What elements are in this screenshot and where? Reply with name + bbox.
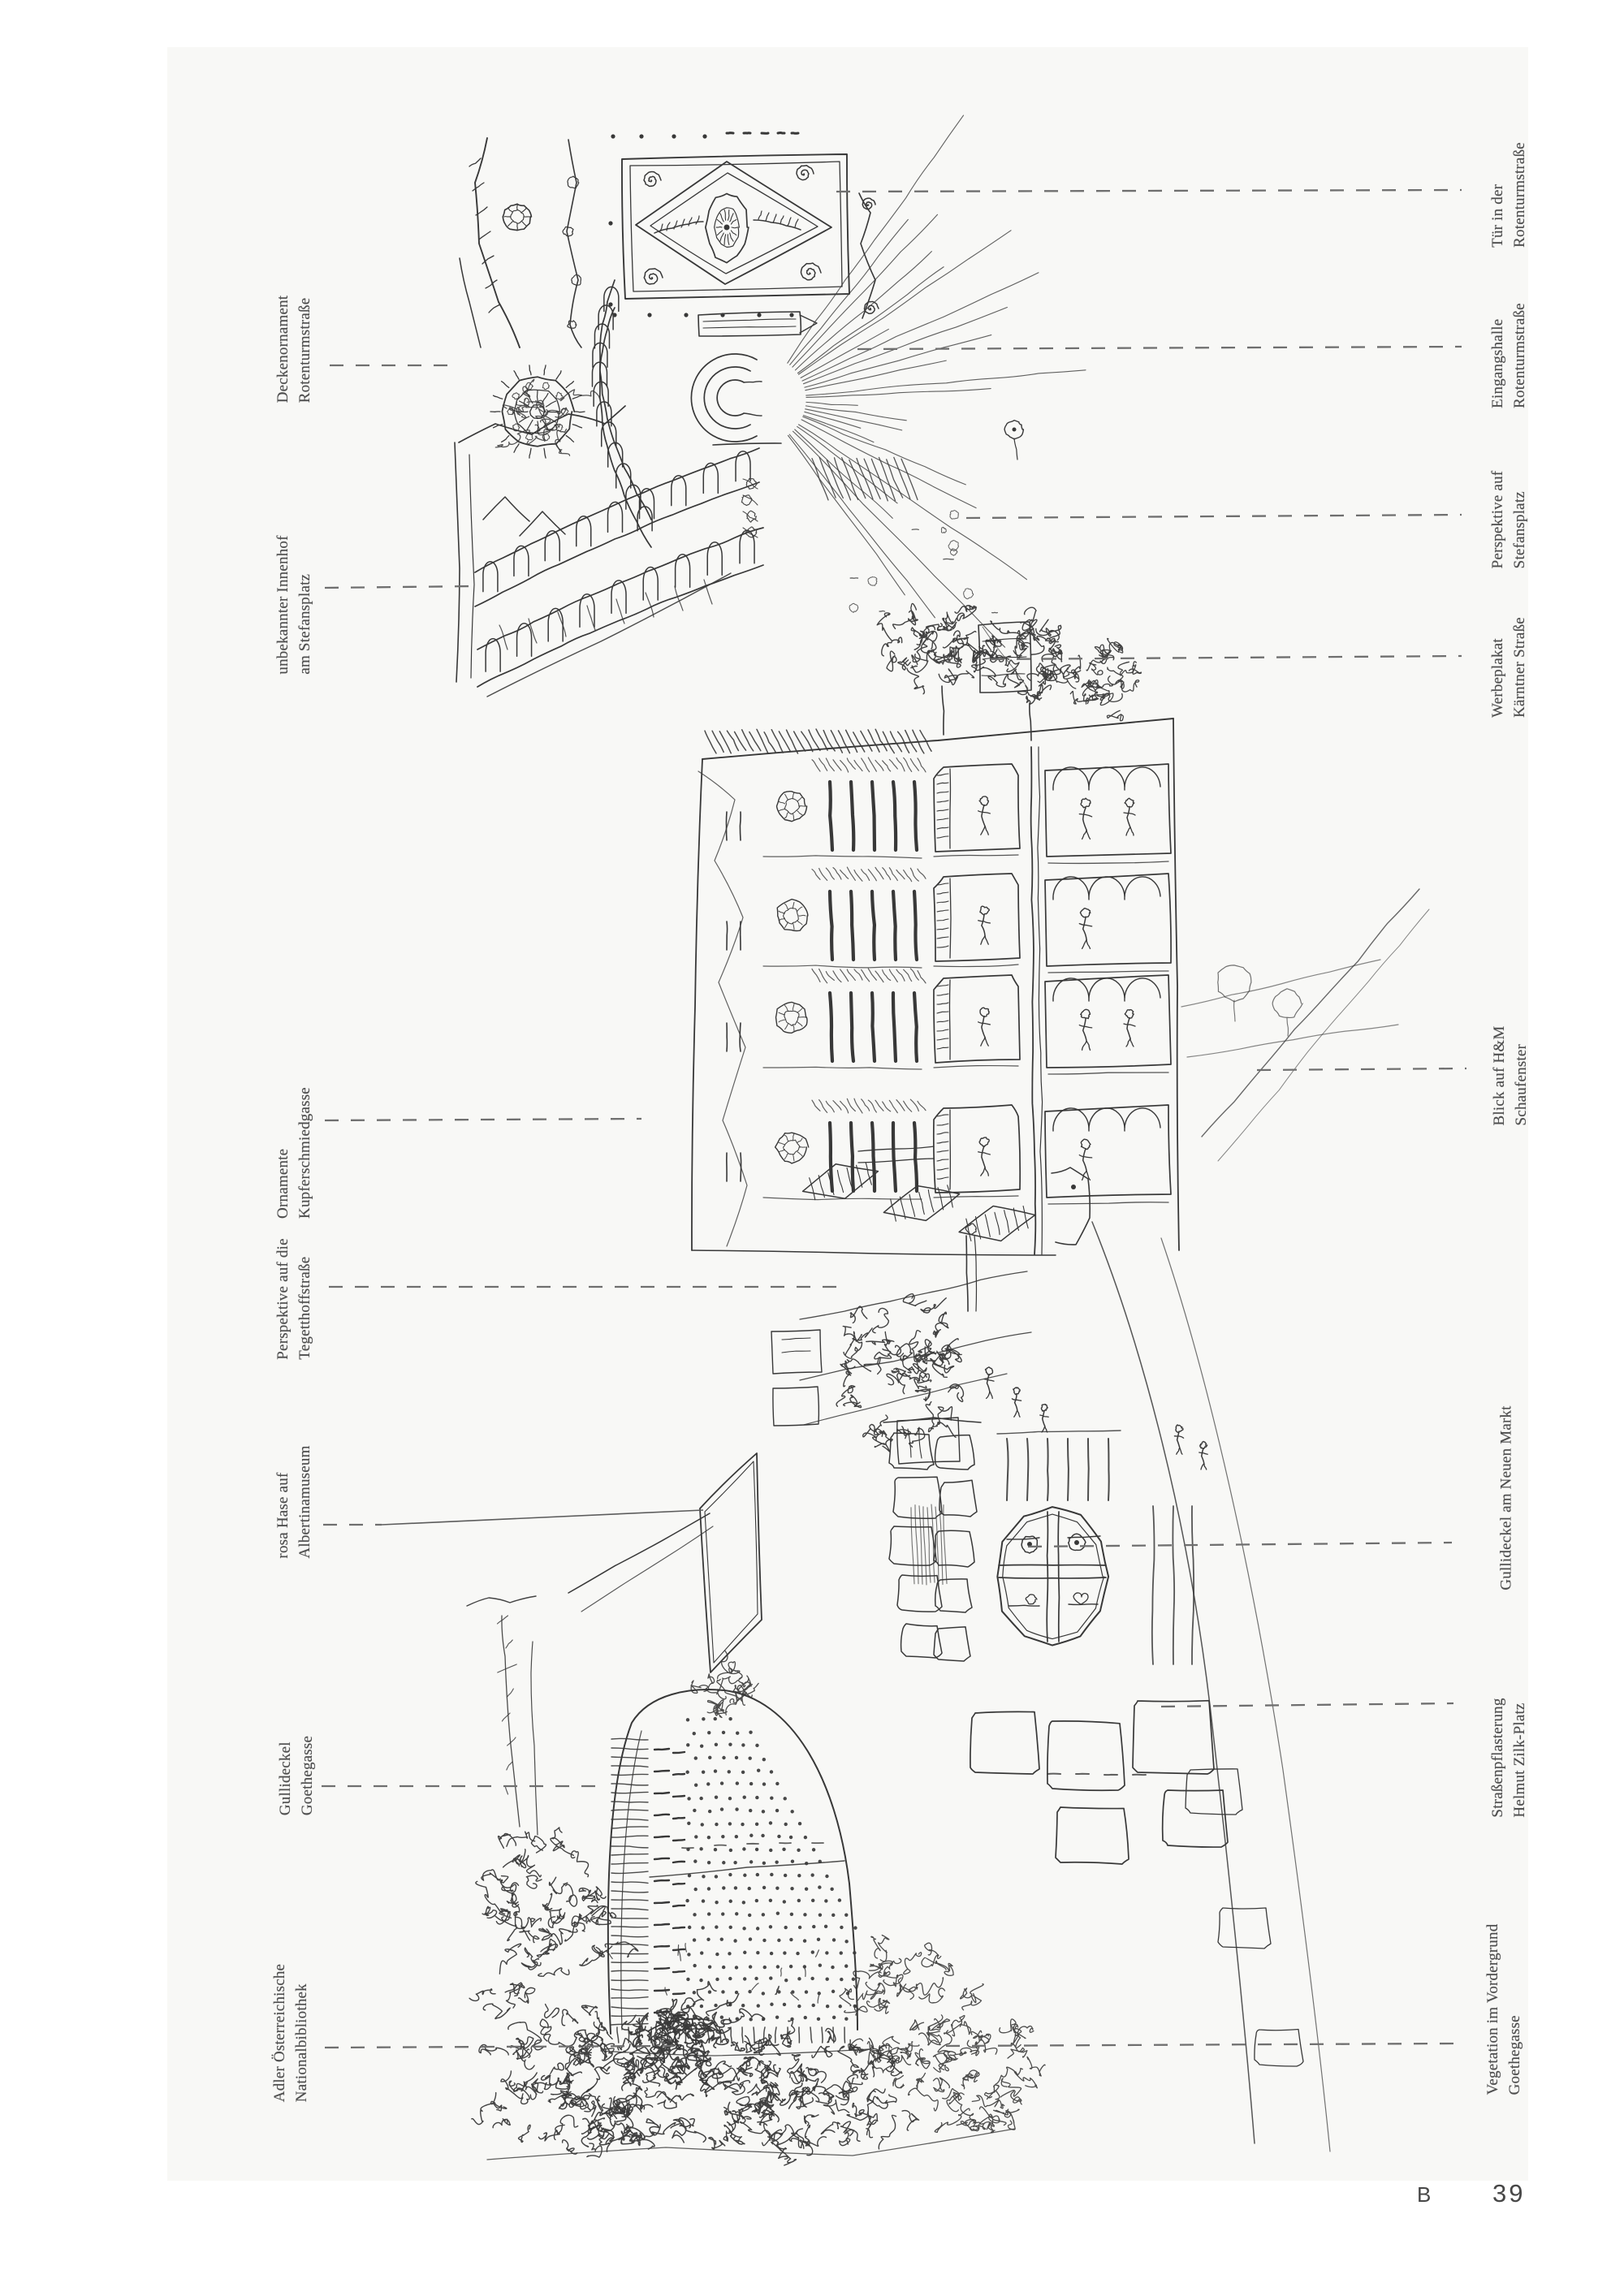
figure-label-text: DeckenornamentRotenturmstraße — [272, 296, 316, 404]
leader-lines — [322, 190, 1466, 2048]
figure-label-line: Albertinamuseum — [294, 1445, 316, 1558]
figure-label-line: Eingangshalle — [1487, 303, 1509, 408]
figure-label-line: Adler Österreichische — [269, 1964, 291, 2102]
footer-section-letter: B — [1417, 2182, 1431, 2208]
figure-label-text: Perspektive auf dieTegetthoffstraße — [272, 1238, 316, 1359]
leader-line — [836, 190, 1462, 192]
figure-label-line: Perspektive auf die — [272, 1238, 294, 1359]
leader-line — [857, 347, 1462, 349]
figure-label-line: Tür in der — [1487, 142, 1509, 248]
figure-label-text: Perspektive aufStefansplatz — [1487, 471, 1531, 569]
figure-label-text: Adler ÖsterreichischeNationalbibliothek — [269, 1964, 313, 2102]
leader-line — [325, 586, 475, 588]
figure-label-text: Gullideckel am Neuen Markt — [1496, 1405, 1518, 1590]
figure-label-line: Kupferschmiedgasse — [294, 1087, 316, 1219]
figure-label-line: Vegetation im Vordergrund — [1482, 1924, 1504, 2095]
figure-label-text: Tür in derRotenturmstraße — [1487, 142, 1531, 248]
figure-label-line: Tegetthoffstraße — [294, 1238, 316, 1359]
figure-label-line: Deckenornament — [272, 296, 294, 404]
figure-label-text: unbekannter Innenhofam Stefansplatz — [272, 535, 316, 674]
figure-label-line: Schaufenster — [1510, 1026, 1532, 1126]
figure-label-line: Gullideckel am Neuen Markt — [1496, 1405, 1518, 1590]
figure-label-text: rosa Hase aufAlbertinamuseum — [272, 1445, 316, 1558]
leader-line — [1161, 1703, 1453, 1707]
figure-label-line: Kärntner Straße — [1509, 617, 1531, 718]
figure-label-line: Rotenturmstraße — [1509, 142, 1531, 248]
figure-label-text: Vegetation im VordergrundGoethegasse — [1482, 1924, 1526, 2095]
figure-label-line: Rotenturmstraße — [1509, 303, 1531, 408]
figure-label-text: Blick auf H&MSchaufenster — [1488, 1026, 1532, 1126]
figure-label-line: rosa Hase auf — [272, 1445, 294, 1558]
figure-label-line: Stefansplatz — [1509, 471, 1531, 569]
figure-label-line: Goethegasse — [296, 1736, 318, 1815]
figure-label-line: Perspektive auf — [1487, 471, 1509, 569]
figure-label-line: Nationalbibliothek — [291, 1964, 313, 2102]
figure-label-text: WerbeplakatKärntner Straße — [1487, 617, 1531, 718]
leader-line — [966, 515, 1462, 518]
figure-label-line: am Stefansplatz — [294, 535, 316, 674]
figure-label-line: Straßenpflasterung — [1487, 1698, 1509, 1817]
leader-line — [325, 1119, 641, 1120]
figure-label-text: OrnamenteKupferschmiedgasse — [272, 1087, 316, 1219]
figure-label-line: Werbeplakat — [1487, 617, 1509, 718]
leader-line — [1028, 1543, 1452, 1547]
figure-label-line: Gullideckel — [274, 1736, 296, 1815]
figure-label-line: Ornamente — [272, 1087, 294, 1219]
leader-line-solid — [382, 1510, 703, 1525]
leader-line — [946, 2044, 1453, 2046]
page: B 39 DeckenornamentRotenturmstraße unbek… — [0, 0, 1624, 2296]
figure-sketch — [0, 0, 1624, 2296]
figure-label-text: StraßenpflasterungHelmut Zilk-Platz — [1487, 1698, 1531, 1817]
figure-label-text: EingangshalleRotenturmstraße — [1487, 303, 1531, 408]
sketch-strokes — [455, 115, 1429, 2165]
figure-label-line: unbekannter Innenhof — [272, 535, 294, 674]
leader-line — [1257, 1068, 1466, 1070]
figure-label-line: Helmut Zilk-Platz — [1509, 1698, 1531, 1817]
figure-label-line: Goethegasse — [1504, 1924, 1526, 2095]
figure-label-line: Blick auf H&M — [1488, 1026, 1510, 1126]
footer-page-number: 39 — [1492, 2179, 1525, 2208]
figure-label-line: Rotenturmstraße — [294, 296, 316, 404]
figure-label-text: GullideckelGoethegasse — [274, 1736, 318, 1815]
